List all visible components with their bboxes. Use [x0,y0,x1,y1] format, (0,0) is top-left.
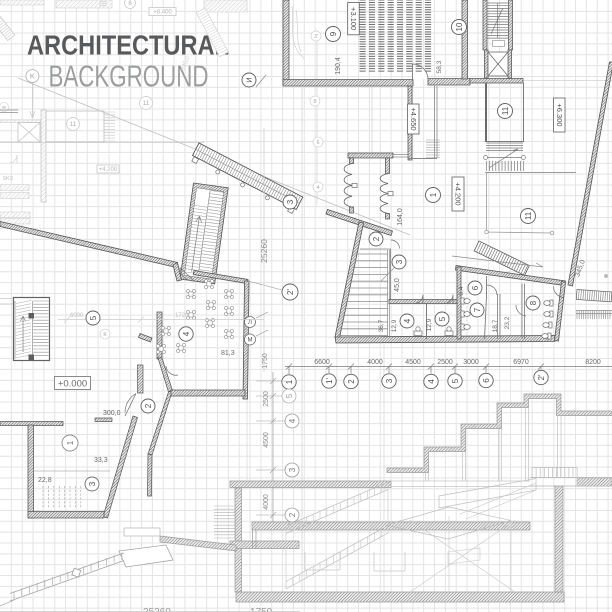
svg-text:12,9: 12,9 [391,319,398,332]
svg-text:3: 3 [88,481,97,486]
svg-text:2: 2 [144,403,153,408]
svg-text:1720: 1720 [175,313,189,319]
svg-text:3': 3' [314,34,318,40]
svg-text:+4.200: +4.200 [454,182,463,205]
svg-text:5: 5 [89,315,98,320]
svg-text:4500: 4500 [263,432,270,448]
svg-text:2': 2' [286,289,295,295]
svg-text:М: М [248,338,253,344]
svg-text:6: 6 [471,285,480,290]
svg-text:9: 9 [329,31,338,36]
svg-text:58,3: 58,3 [436,60,443,73]
svg-text:5: 5 [451,378,460,383]
svg-text:2: 2 [288,512,297,517]
svg-text:3: 3 [395,259,404,264]
svg-text:22,8: 22,8 [38,477,52,484]
svg-text:11: 11 [143,101,150,107]
svg-text:2': 2' [537,374,546,380]
svg-text:4: 4 [427,379,436,384]
svg-text:+0.000: +0.000 [58,379,87,390]
svg-text:45,0: 45,0 [394,278,401,292]
svg-text:1': 1' [325,378,334,384]
svg-text:4: 4 [182,331,191,336]
svg-text:+8.400: +8.400 [153,9,172,15]
svg-text:+4.200: +4.200 [99,167,118,173]
svg-text:36,7: 36,7 [378,319,385,332]
svg-text:18,7: 18,7 [492,319,499,332]
svg-text:4000: 4000 [263,494,270,510]
svg-text:3000: 3000 [463,359,479,366]
svg-text:11: 11 [70,122,77,128]
svg-text:7: 7 [473,307,482,312]
svg-text:4: 4 [403,318,412,323]
svg-text:3: 3 [288,467,297,472]
svg-text:ARCHITECTURAL: ARCHITECTURAL [27,30,229,61]
svg-text:6000: 6000 [70,313,84,319]
svg-text:1: 1 [285,379,294,384]
svg-text:3: 3 [385,378,394,383]
svg-text:4000: 4000 [367,359,383,366]
svg-text:1750: 1750 [262,353,269,369]
svg-text:6970: 6970 [513,359,529,366]
svg-text:23,2: 23,2 [504,316,511,329]
svg-text:10: 10 [455,22,464,31]
svg-text:+6.300: +6.300 [555,103,564,126]
svg-text:6: 6 [482,378,491,383]
svg-text:8,4: 8,4 [458,286,465,295]
svg-text:+3.100: +3.100 [349,7,358,30]
svg-text:4: 4 [288,418,297,423]
svg-text:11: 11 [501,106,510,115]
svg-text:6600: 6600 [314,359,330,366]
svg-text:8: 8 [529,300,538,305]
svg-text:1: 1 [65,440,75,445]
svg-text:3: 3 [286,199,295,204]
svg-text:6: 6 [316,140,319,146]
svg-text:5K3: 5K3 [3,176,13,182]
svg-text:5: 5 [438,316,447,321]
svg-text:81,3: 81,3 [221,350,235,357]
svg-text:300,0: 300,0 [103,410,121,417]
svg-text:8200: 8200 [585,359,601,366]
svg-text:33,3: 33,3 [94,457,108,464]
svg-text:И: И [245,77,254,82]
svg-text:2: 2 [347,379,356,384]
svg-text:4500: 4500 [405,359,421,366]
svg-text:Л: Л [248,320,252,326]
svg-text:+4.650: +4.650 [409,107,418,130]
svg-text:1: 1 [429,192,438,197]
svg-text:11: 11 [524,211,533,220]
svg-text:K: K [30,72,35,81]
svg-text:12,9: 12,9 [426,318,433,331]
svg-text:2500: 2500 [437,359,453,366]
svg-text:190,4: 190,4 [335,57,342,75]
svg-text:5: 5 [285,393,294,398]
svg-text:2: 2 [372,236,381,241]
svg-text:25260: 25260 [259,239,269,263]
svg-text:4: 4 [316,185,319,191]
svg-text:8: 8 [313,99,316,105]
svg-text:2500: 2500 [263,391,270,407]
svg-text:164,0: 164,0 [397,208,404,226]
